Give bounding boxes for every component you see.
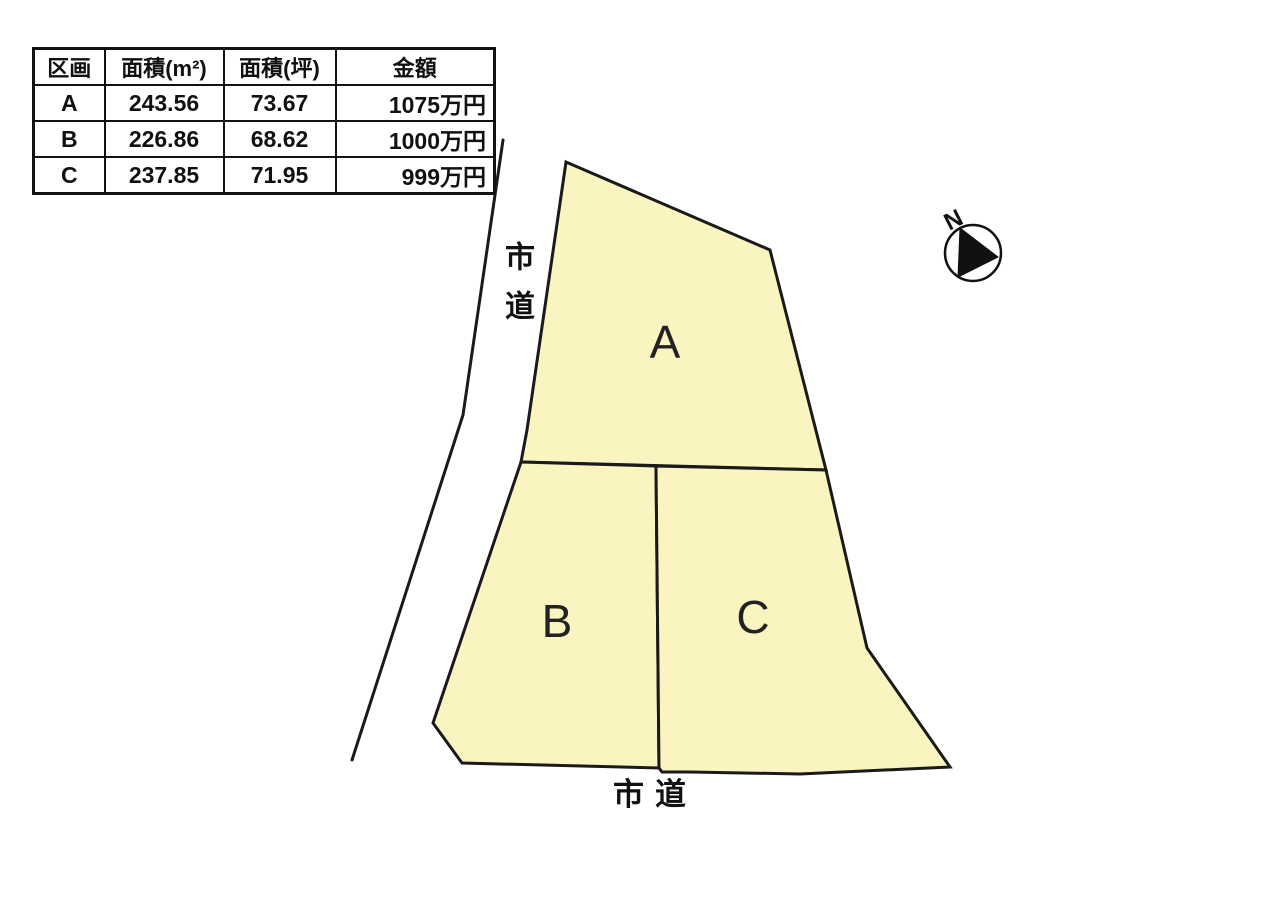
cell-area-m2: 237.85 (105, 157, 224, 194)
cell-area-tsubo: 73.67 (224, 85, 336, 121)
price-table: 区画 面積(m²) 面積(坪) 金額 A 243.56 73.67 1075万円… (32, 47, 496, 195)
cell-plot: A (34, 85, 105, 121)
cell-price: 999万円 (336, 157, 495, 194)
cell-area-tsubo: 68.62 (224, 121, 336, 157)
cell-area-tsubo: 71.95 (224, 157, 336, 194)
table-row: A 243.56 73.67 1075万円 (34, 85, 495, 121)
header-plot: 区画 (34, 49, 105, 86)
header-area-m2: 面積(m²) (105, 49, 224, 86)
header-price: 金額 (336, 49, 495, 86)
compass-north-icon: N (940, 204, 1001, 281)
parcel-a-label: A (650, 316, 681, 368)
cell-plot: B (34, 121, 105, 157)
cell-area-m2: 243.56 (105, 85, 224, 121)
cell-price: 1000万円 (336, 121, 495, 157)
cell-price: 1075万円 (336, 85, 495, 121)
parcel-b-label: B (542, 595, 573, 647)
table-row: C 237.85 71.95 999万円 (34, 157, 495, 194)
parcel-c-shape (656, 466, 950, 774)
road-label-bottom: 市道 (613, 779, 697, 810)
cell-area-m2: 226.86 (105, 121, 224, 157)
road-label-left: 市道 (501, 241, 531, 339)
table-header-row: 区画 面積(m²) 面積(坪) 金額 (34, 49, 495, 86)
site-plan-page: A B C N 区画 面積(m²) 面積(坪) 金額 A 243.56 7 (0, 0, 1280, 904)
header-area-tsubo: 面積(坪) (224, 49, 336, 86)
cell-plot: C (34, 157, 105, 194)
parcel-c-label: C (736, 591, 769, 643)
table-row: B 226.86 68.62 1000万円 (34, 121, 495, 157)
